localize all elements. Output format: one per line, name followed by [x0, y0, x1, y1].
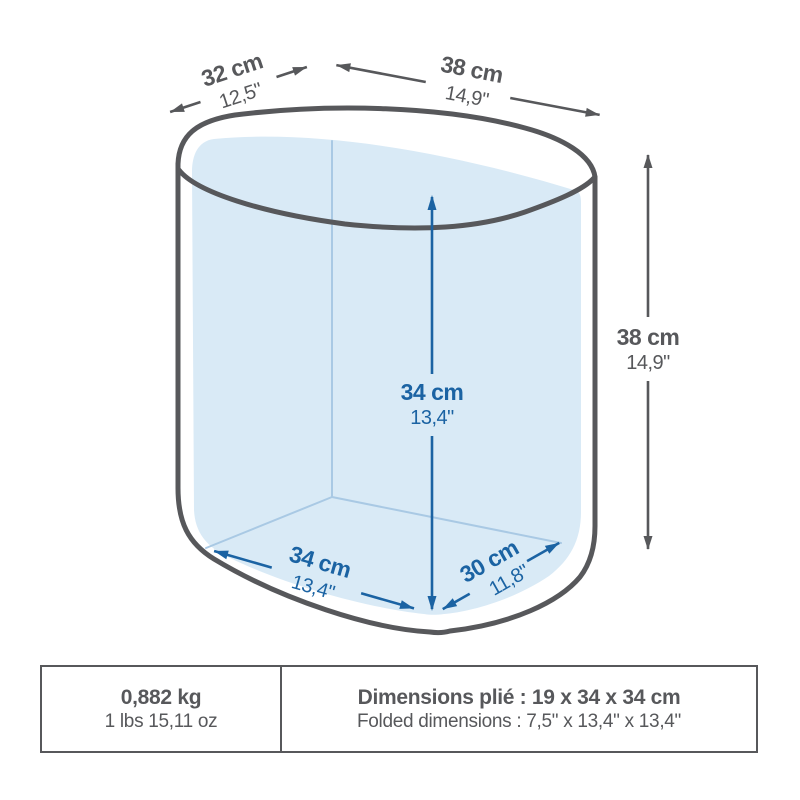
container-illustration — [178, 108, 595, 633]
product-dimension-diagram: 32 cm 12,5" 38 cm 14,9" 38 cm 14,9" — [0, 0, 800, 800]
dim-outer-height-in: 14,9" — [626, 352, 670, 374]
spec-cell-weight: 0,882 kg 1 lbs 15,11 oz — [42, 667, 282, 751]
container-interior-fill — [192, 137, 581, 615]
arrowhead-up — [644, 154, 653, 168]
spec-table: 0,882 kg 1 lbs 15,11 oz Dimensions plié … — [40, 665, 758, 753]
dim-top-width-in: 14,9" — [443, 82, 490, 112]
folded-dimensions-imperial: Folded dimensions : 7,5" x 13,4" x 13,4" — [357, 710, 681, 733]
dim-inner-height-cm: 34 cm — [401, 379, 464, 405]
dim-inner-height-in: 13,4" — [410, 407, 454, 429]
spec-cell-folded-dimensions: Dimensions plié : 19 x 34 x 34 cm Folded… — [282, 667, 756, 751]
weight-metric: 0,882 kg — [121, 685, 202, 711]
weight-imperial: 1 lbs 15,11 oz — [105, 710, 218, 733]
arrowhead-right — [292, 63, 308, 76]
arrowhead-down — [644, 536, 653, 550]
arrowhead-left — [169, 103, 185, 116]
folded-dimensions-metric: Dimensions plié : 19 x 34 x 34 cm — [358, 685, 681, 711]
dimension-outer-height: 38 cm 14,9" — [617, 154, 680, 550]
dim-outer-height-cm: 38 cm — [617, 324, 680, 350]
